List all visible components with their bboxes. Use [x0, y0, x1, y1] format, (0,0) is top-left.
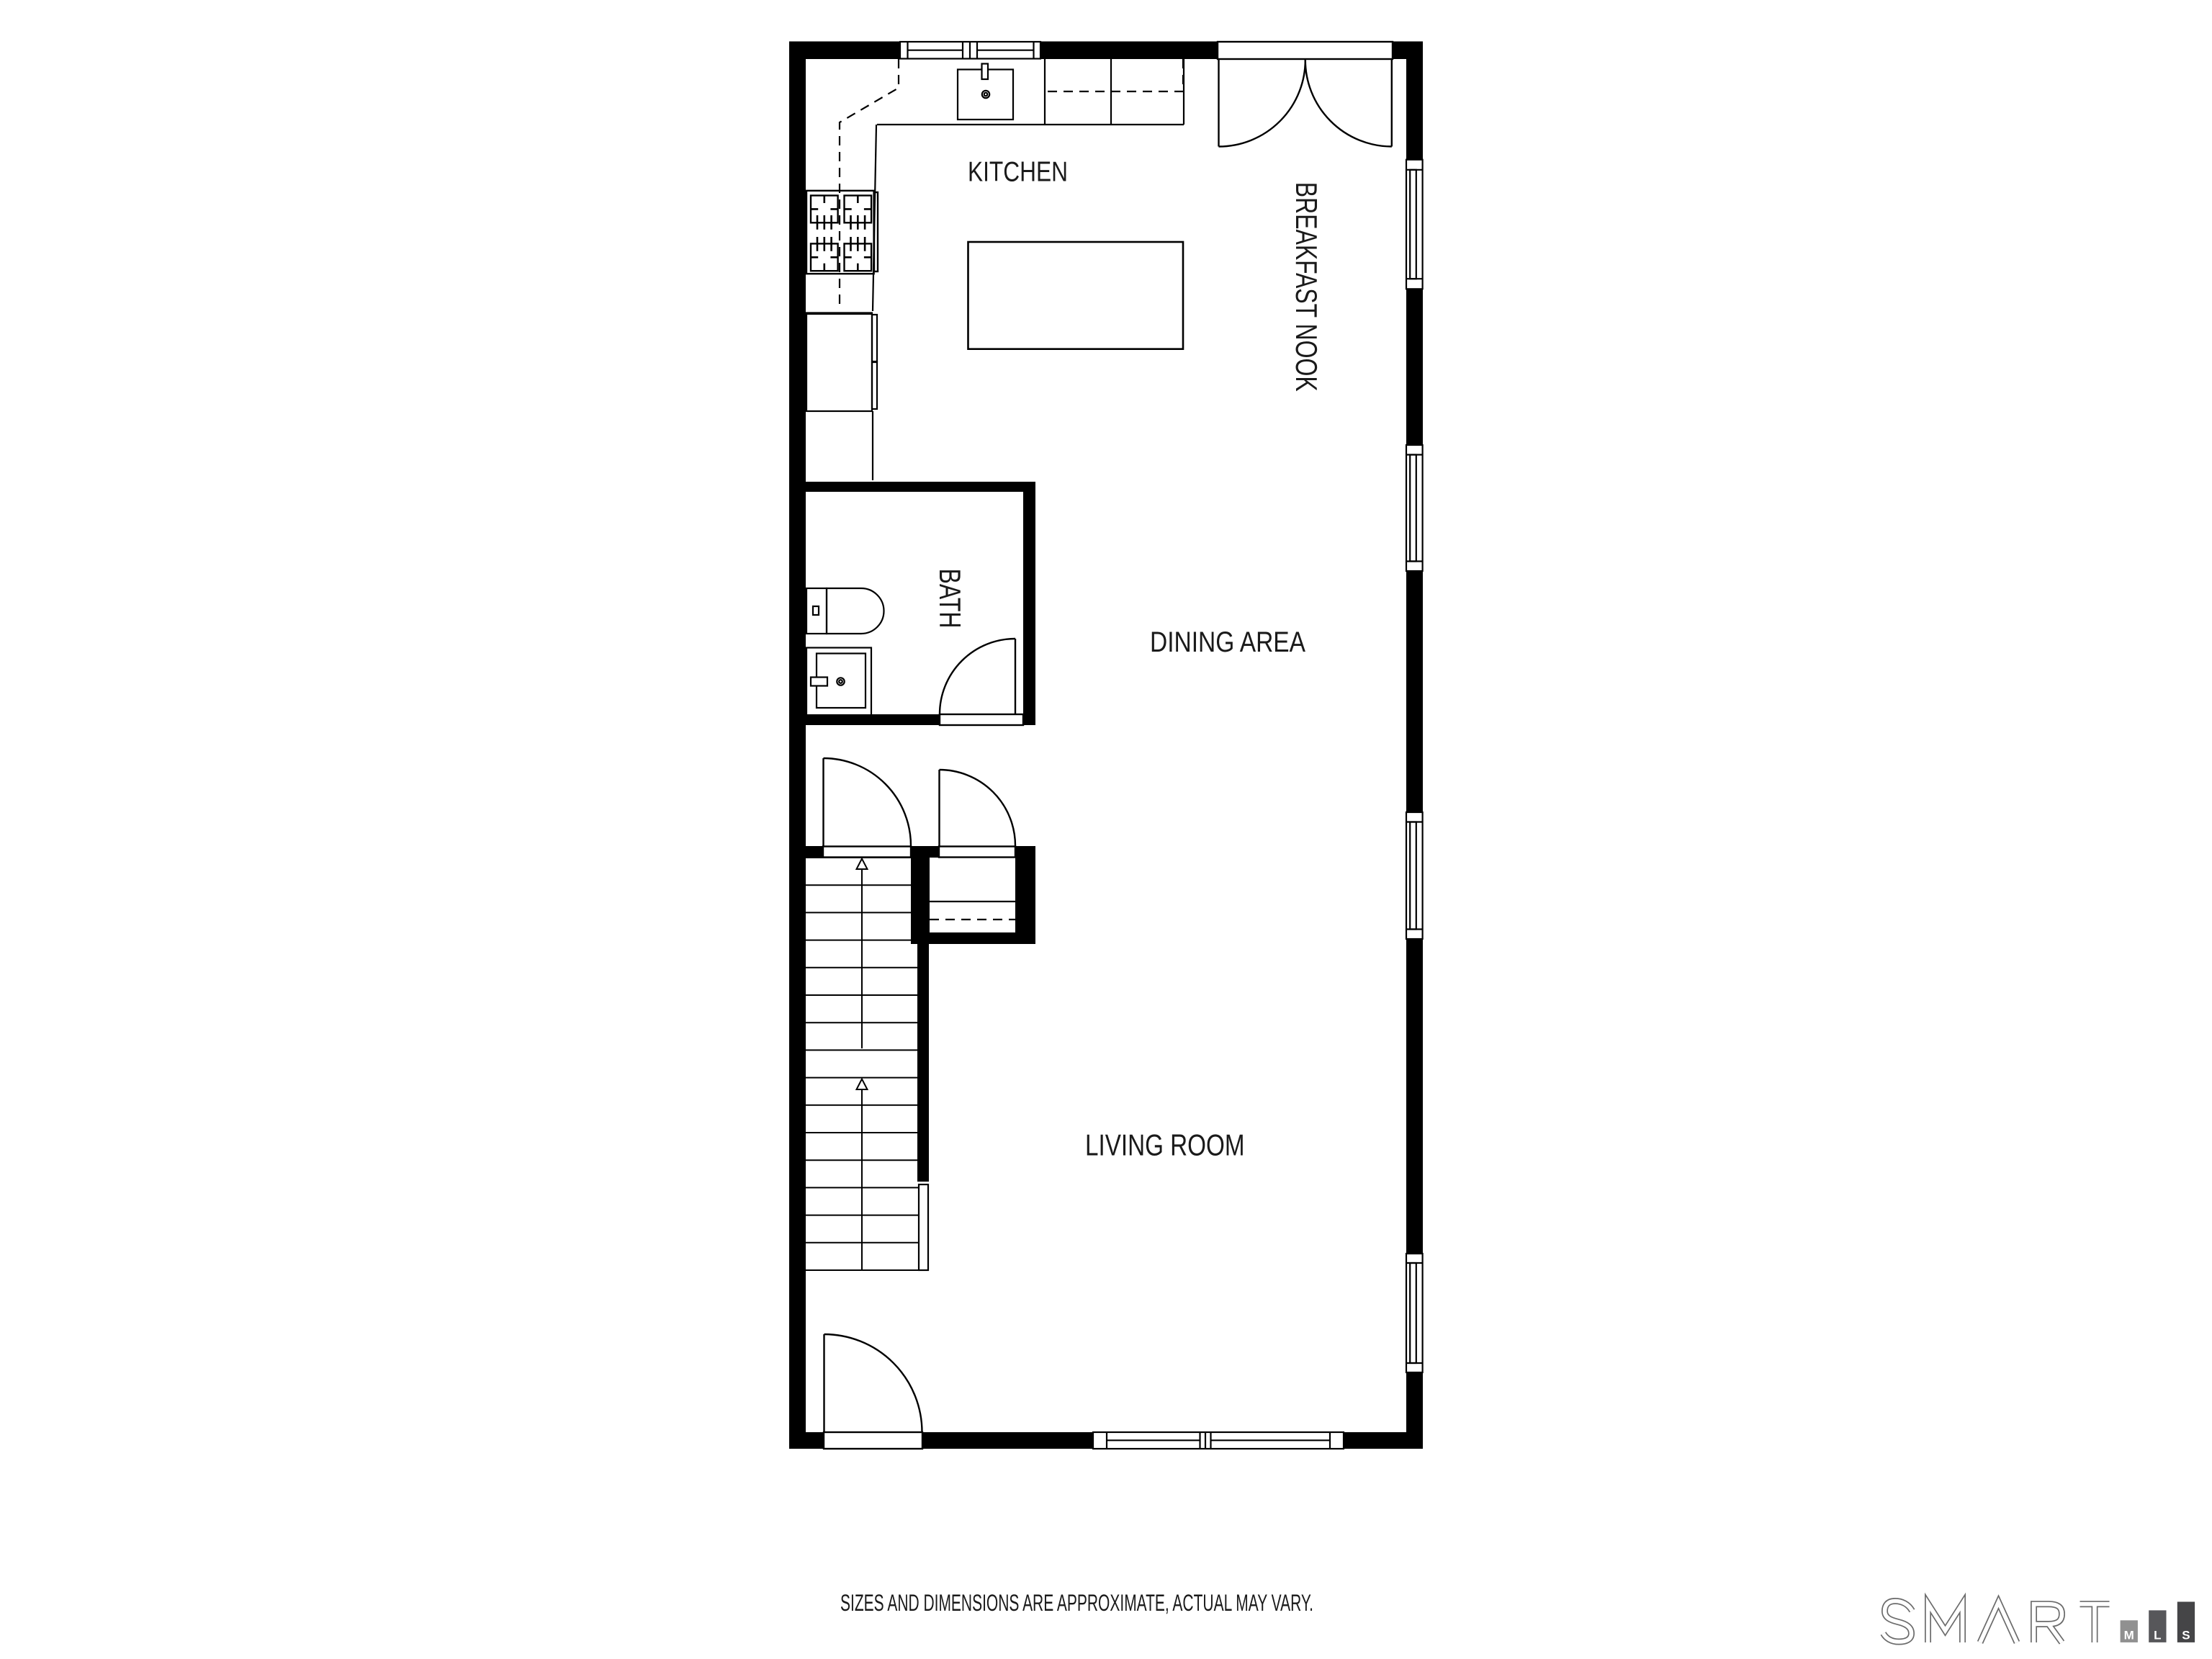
- svg-text:DINING AREA: DINING AREA: [1150, 626, 1305, 658]
- svg-text:KITCHEN: KITCHEN: [968, 157, 1068, 188]
- svg-text:BREAKFAST NOOK: BREAKFAST NOOK: [1290, 182, 1323, 392]
- svg-text:M: M: [2124, 1629, 2134, 1642]
- svg-text:SIZES AND DIMENSIONS ARE APPRO: SIZES AND DIMENSIONS ARE APPROXIMATE, AC…: [840, 1590, 1313, 1616]
- svg-text:BATH: BATH: [933, 569, 967, 629]
- svg-text:LIVING ROOM: LIVING ROOM: [1085, 1128, 1245, 1162]
- svg-text:L: L: [2154, 1629, 2161, 1642]
- svg-text:S: S: [2182, 1629, 2190, 1642]
